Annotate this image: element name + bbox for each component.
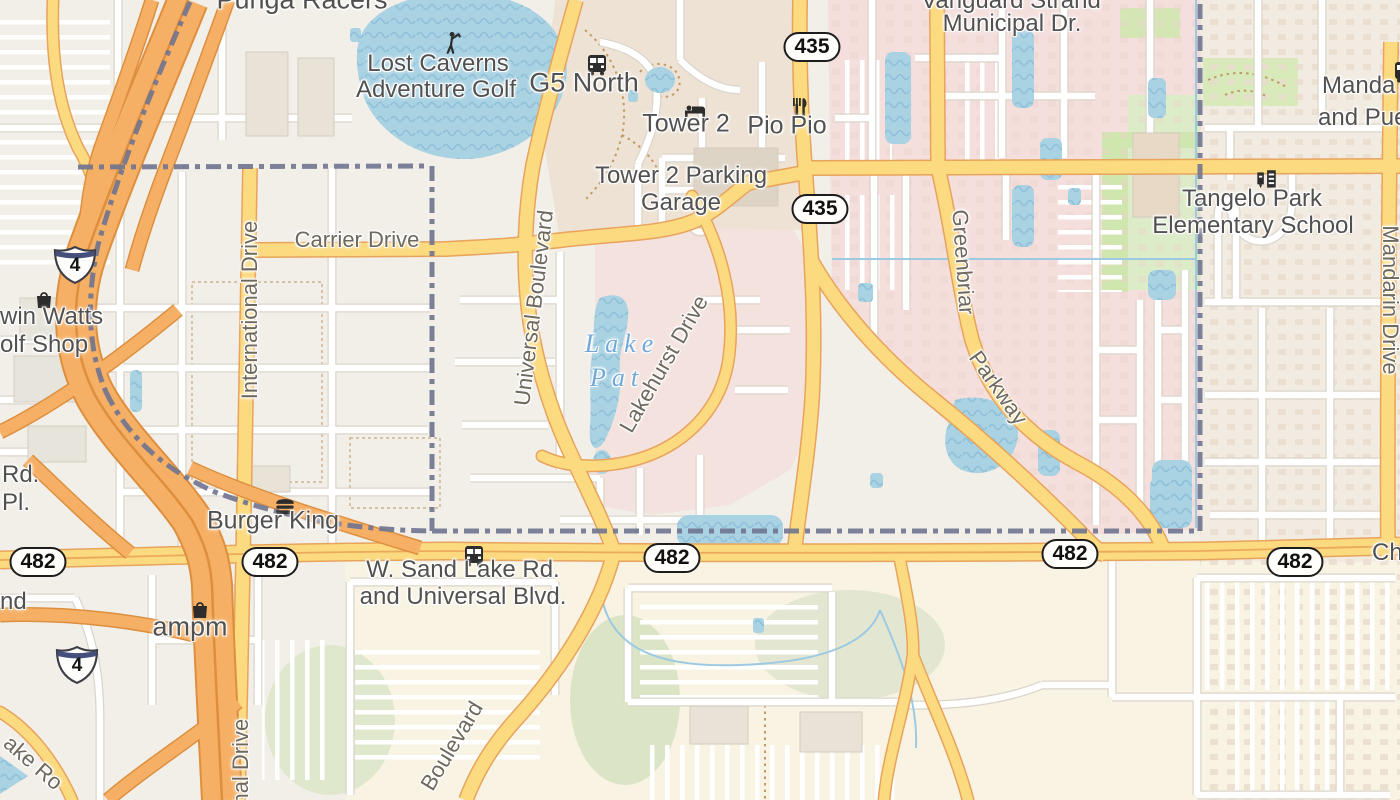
poi-label-lost-caverns-2: Adventure Golf <box>356 76 516 104</box>
road-label-international-drive: International Drive <box>237 221 263 400</box>
poi-label-punga-racers: Punga Racers <box>216 0 387 16</box>
route-shield-482: 482 <box>643 543 700 573</box>
poi-label-vanguard-2: Municipal Dr. <box>943 10 1082 38</box>
route-shield-435: 435 <box>791 194 848 224</box>
interstate-shield-4: 4 <box>55 646 99 684</box>
route-shield-482: 482 <box>1266 547 1323 577</box>
poi-label-ampm: ampm <box>152 612 227 643</box>
label-nd-fragment: nd <box>0 588 27 616</box>
road-label-ch-fragment: Ch <box>1372 539 1400 567</box>
route-shield-482: 482 <box>1041 539 1098 569</box>
water-label-lake: Lake <box>585 329 660 359</box>
poi-label-tangelo-2: Elementary School <box>1152 212 1353 240</box>
poi-label-burger-king: Burger King <box>207 507 339 536</box>
route-shield-482: 482 <box>241 547 298 577</box>
poi-label-pio-pio: Pio Pio <box>747 112 826 141</box>
route-shield-482: 482 <box>9 547 66 577</box>
interstate-shield-4: 4 <box>53 246 97 284</box>
road-label-carrier-drive: Carrier Drive <box>295 227 420 253</box>
poi-label-tower2: Tower 2 <box>642 110 730 139</box>
poi-label-watts-1: win Watts <box>0 303 103 331</box>
poi-label-garage-1: Tower 2 Parking <box>595 162 767 190</box>
road-label-international-drive-south: International Drive <box>228 719 254 800</box>
road-label-pl-fragment: Pl. <box>2 489 30 517</box>
poi-label-lost-caverns-1: Lost Caverns <box>367 50 508 78</box>
road-label-rd-fragment: Rd. <box>2 461 39 489</box>
poi-label-g5-north: G5 North <box>529 68 639 99</box>
poi-label-sandlake-2: and Universal Blvd. <box>360 583 567 611</box>
road-label-mandarin-drive: Mandarin Drive <box>1377 225 1400 374</box>
poi-label-watts-2: olf Shop <box>0 331 88 359</box>
poi-label-manda-2: and Pue <box>1318 104 1400 132</box>
poi-label-tangelo-1: Tangelo Park <box>1182 185 1322 213</box>
poi-label-manda-1: Manda <box>1322 72 1395 100</box>
poi-label-garage-2: Garage <box>641 189 721 217</box>
map-canvas[interactable]: Punga Racers Lost Caverns Adventure Golf… <box>0 0 1400 800</box>
poi-label-sandlake-1: W. Sand Lake Rd. <box>366 556 559 584</box>
route-shield-435: 435 <box>783 32 840 62</box>
